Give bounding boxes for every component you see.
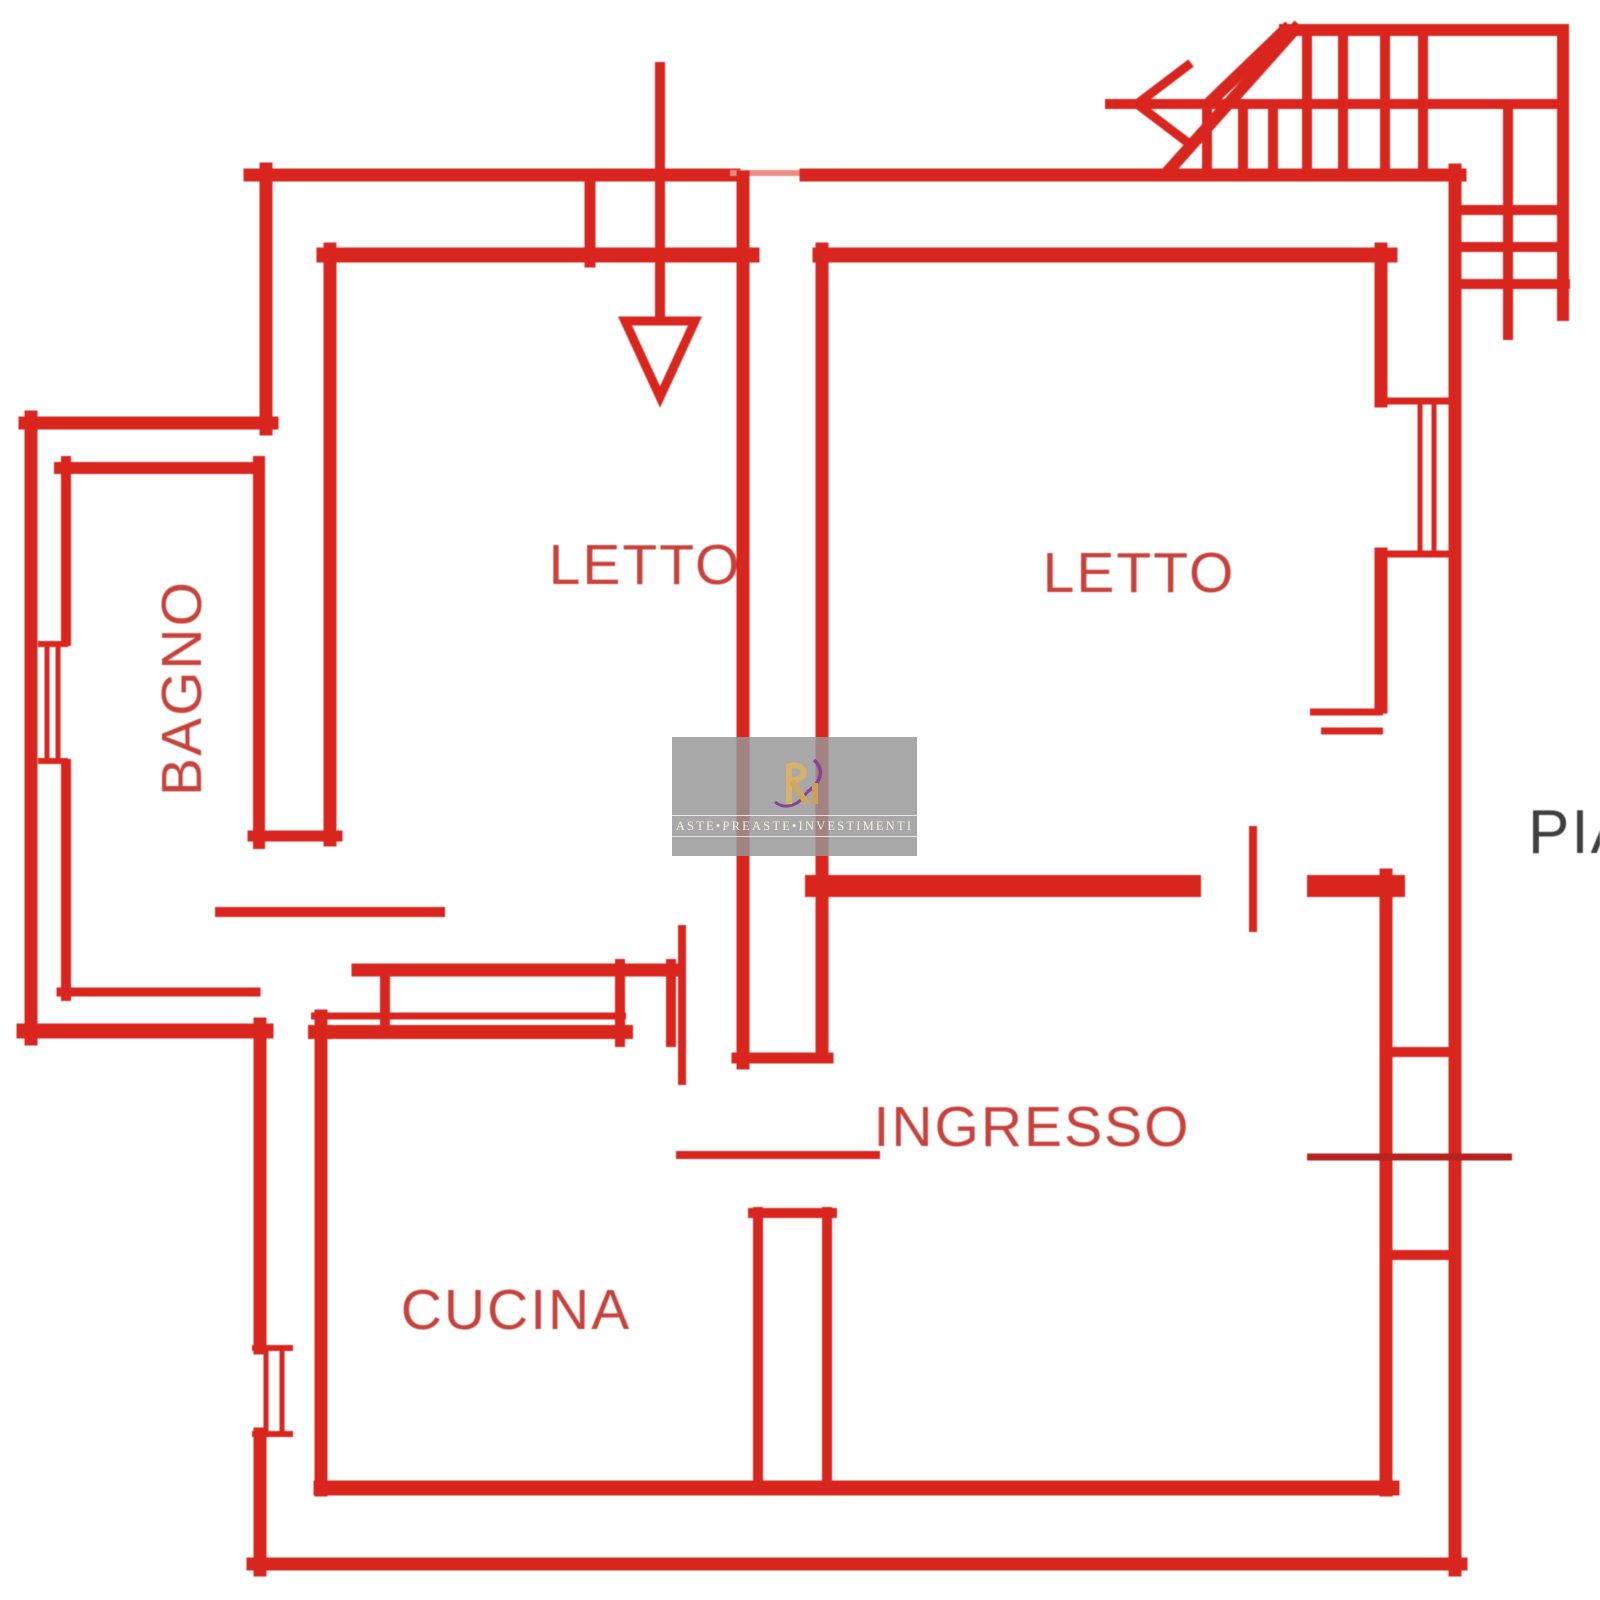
floor-label-pia: PIA <box>1528 798 1600 867</box>
east-wall-details <box>1307 249 1512 1490</box>
watermark: ASTE•PREASTE•INVESTIMENTI <box>672 737 917 856</box>
room-label-cucina: CUCINA <box>401 1278 632 1342</box>
bagno-walls <box>60 249 445 996</box>
cucina-north-walls <box>311 925 682 1490</box>
cucina-window <box>252 1348 293 1434</box>
stairs-arrow-head-upper <box>1137 63 1191 104</box>
entrance-arrow-head <box>625 321 695 397</box>
room-label-ingresso: INGRESSO <box>874 1095 1191 1159</box>
room-label-letto-left: LETTO <box>549 533 742 597</box>
bagno-window <box>38 644 68 761</box>
ingresso-walls <box>321 826 1394 1489</box>
watermark-logo-icon <box>759 756 831 814</box>
room-label-letto-right: LETTO <box>1043 541 1236 605</box>
room-label-bagno: BAGNO <box>150 580 214 796</box>
vestibule-and-corridor-walls <box>324 177 1390 1063</box>
stairs-arrow-head-lower <box>1137 104 1191 145</box>
stairs <box>1105 29 1570 340</box>
watermark-text: ASTE•PREASTE•INVESTIMENTI <box>670 815 919 837</box>
floor-plan-page: BAGNO LETTO LETTO CUCINA INGRESSO PIA AS… <box>0 0 1600 1600</box>
entrance-arrow-icon <box>625 62 695 397</box>
stairs-slant-edge <box>1208 30 1285 104</box>
